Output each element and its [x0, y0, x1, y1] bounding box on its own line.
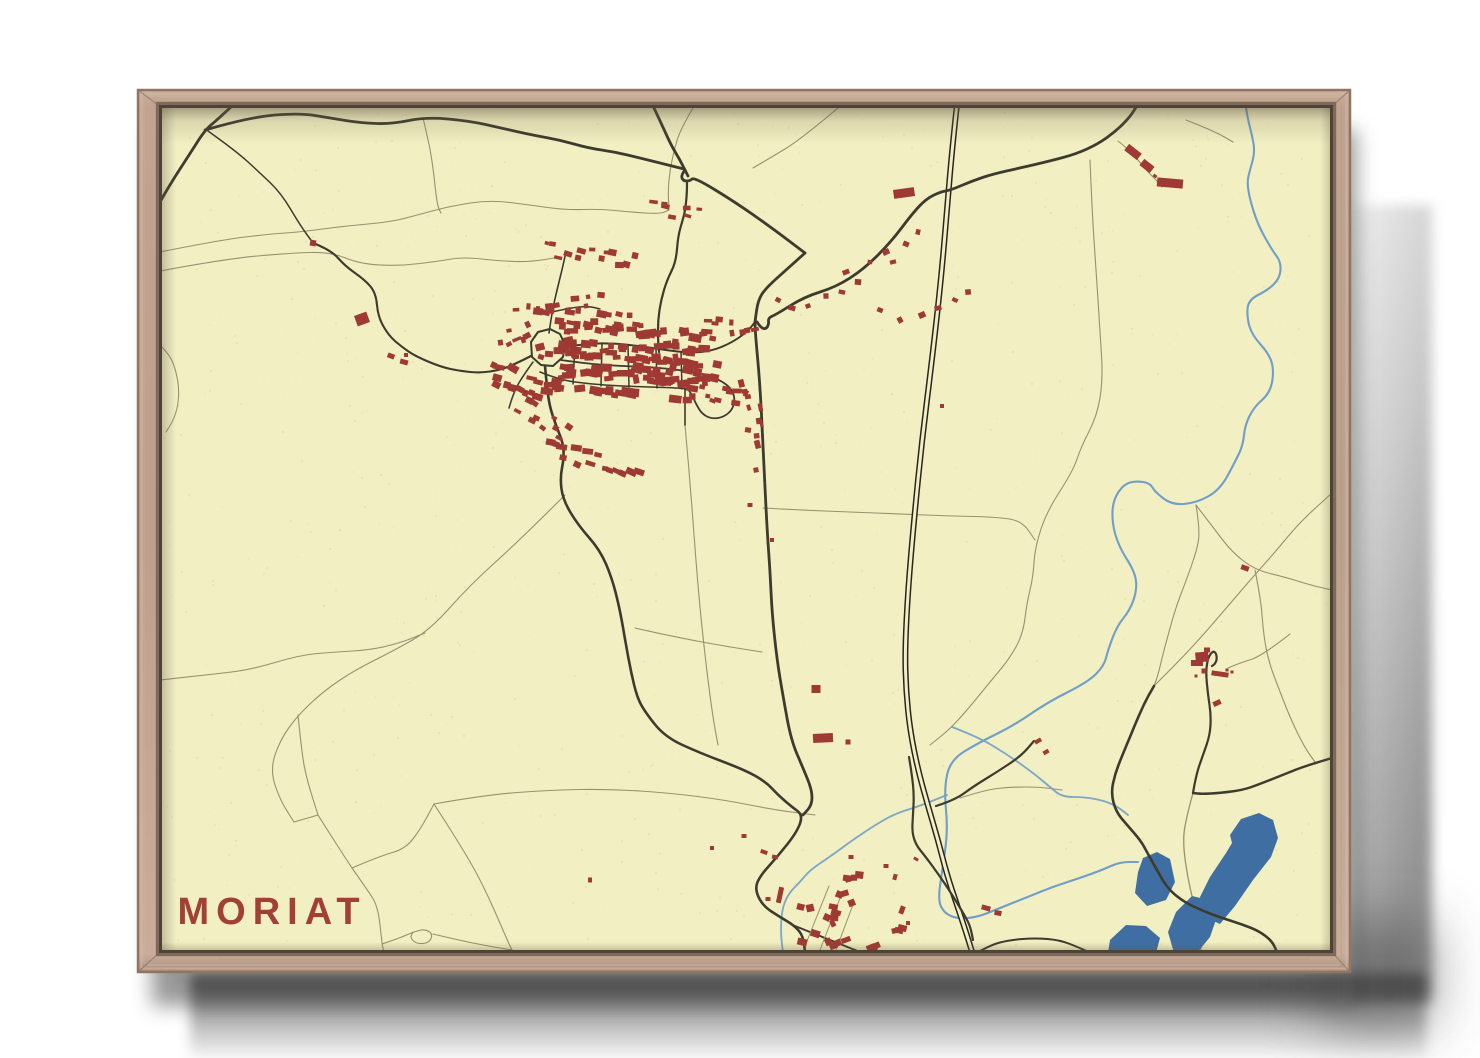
svg-text:MORIAT: MORIAT — [178, 891, 367, 933]
